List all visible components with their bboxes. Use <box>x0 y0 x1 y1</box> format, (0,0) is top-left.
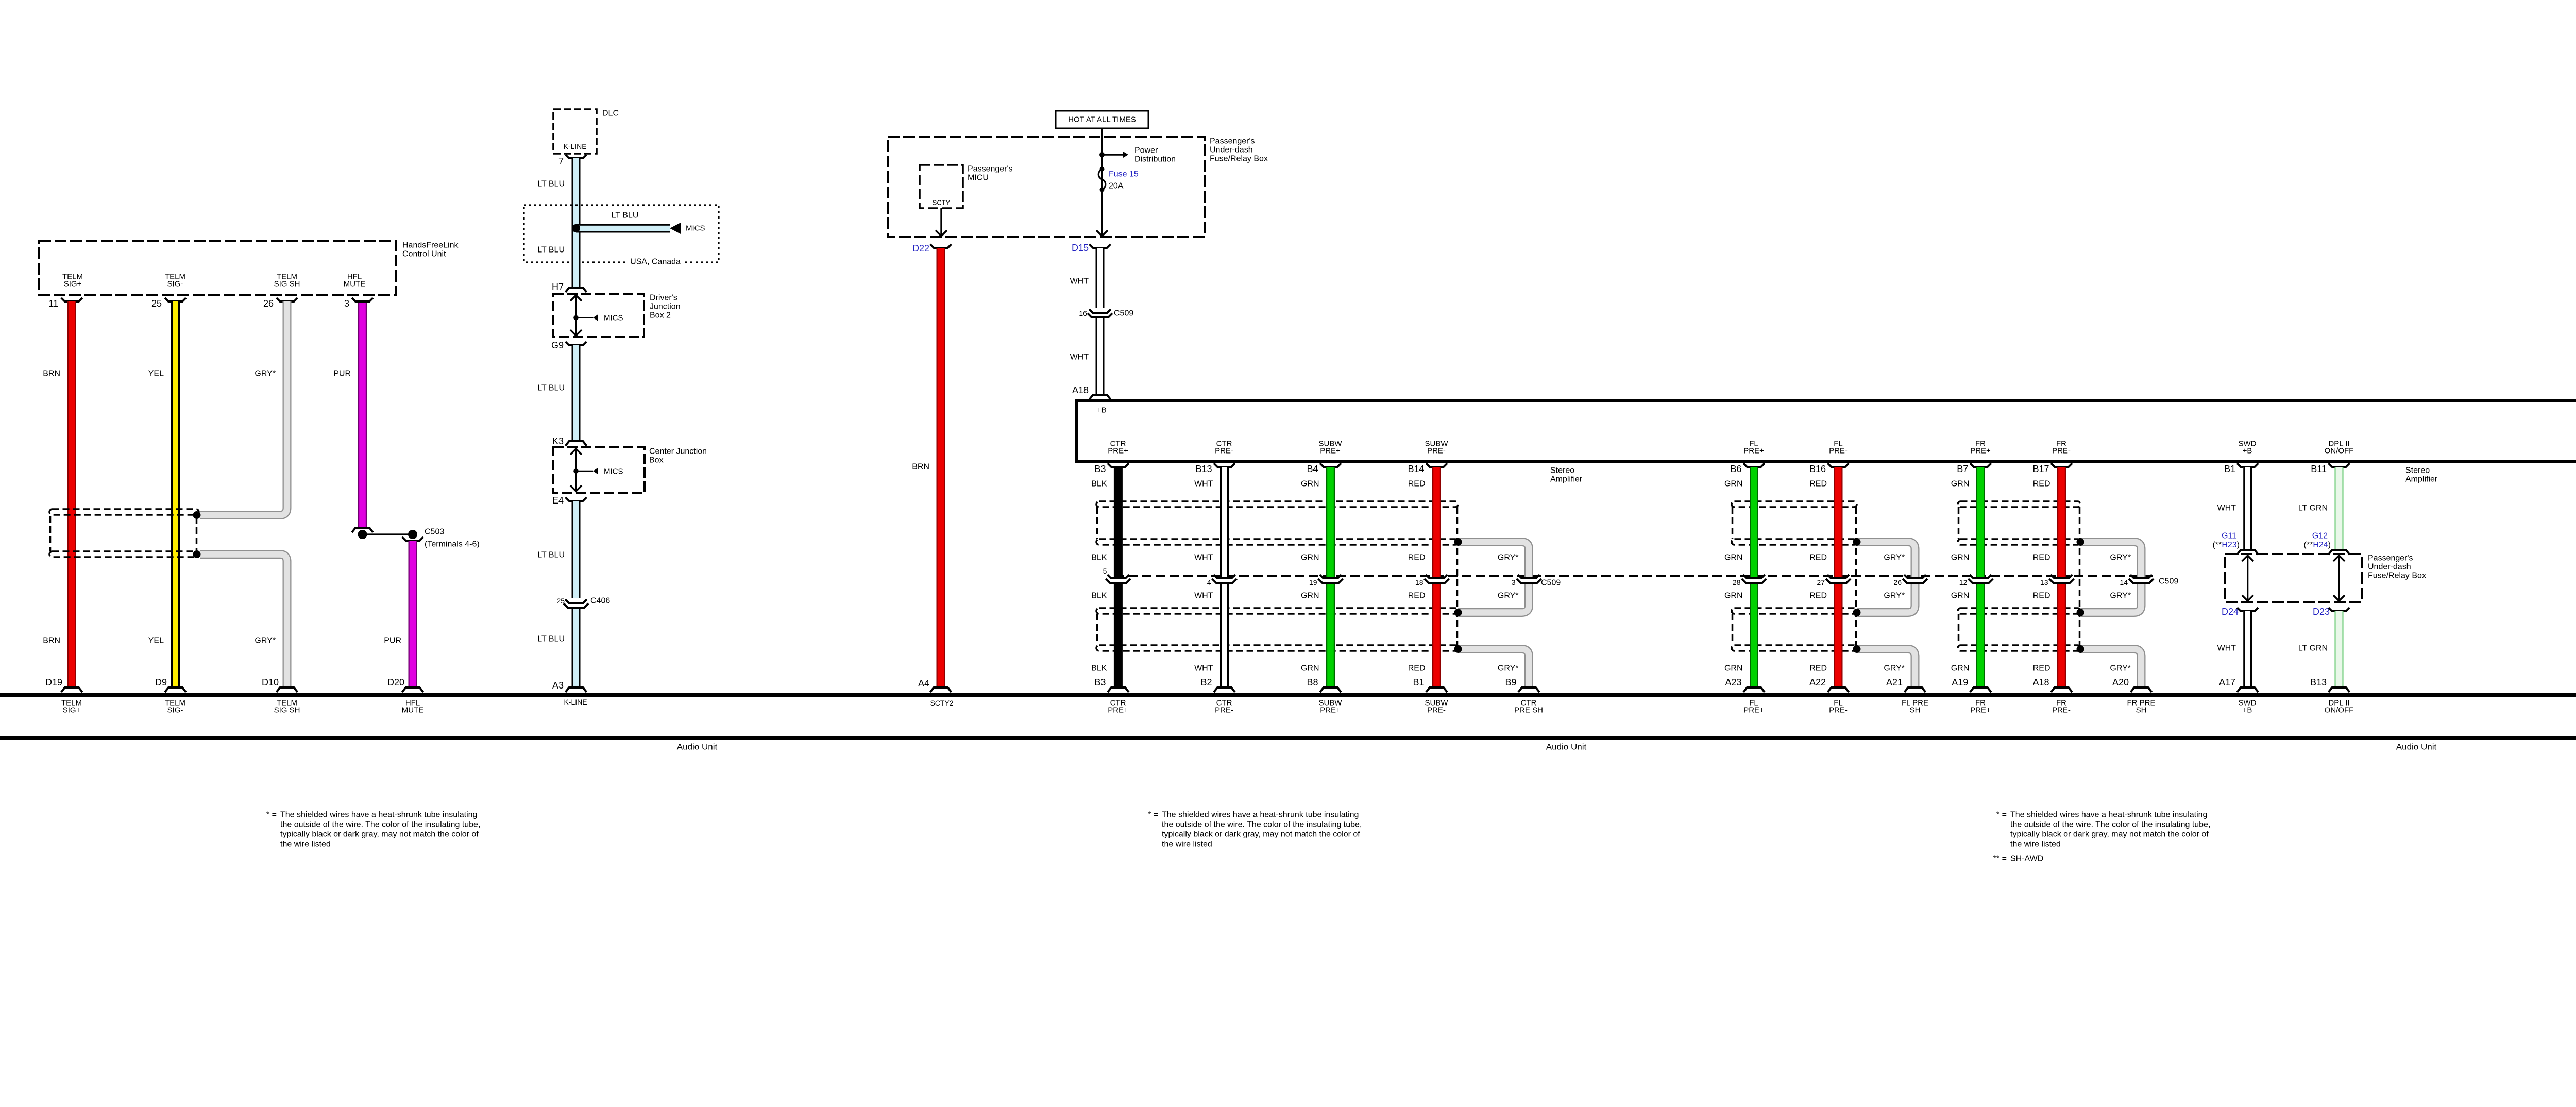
svg-text:PRE-: PRE- <box>1829 447 1848 456</box>
svg-text:SH: SH <box>2136 706 2147 715</box>
svg-text:A22: A22 <box>1809 677 1826 687</box>
svg-text:Stereo: Stereo <box>1550 466 1574 475</box>
svg-text:typically black or dark gray,: typically black or dark gray, may not ma… <box>1162 830 1360 839</box>
svg-text:B14: B14 <box>1408 464 1424 474</box>
svg-text:* =: * = <box>266 811 277 819</box>
svg-text:MICU: MICU <box>968 174 989 182</box>
svg-text:B7: B7 <box>1957 464 1968 474</box>
svg-text:GRN: GRN <box>1724 480 1743 489</box>
svg-text:SH-AWD: SH-AWD <box>2010 854 2043 863</box>
svg-text:** =: ** = <box>1993 854 2007 863</box>
svg-text:RED: RED <box>1408 553 1426 562</box>
svg-text:HandsFreeLink: HandsFreeLink <box>402 241 459 250</box>
svg-text:B6: B6 <box>1730 464 1741 474</box>
svg-text:ON/OFF: ON/OFF <box>2325 706 2354 715</box>
svg-text:The shielded wires have a heat: The shielded wires have a heat-shrunk tu… <box>280 811 477 819</box>
svg-text:SCTY: SCTY <box>933 199 951 207</box>
svg-text:Audio Unit: Audio Unit <box>2396 742 2437 752</box>
svg-text:The shielded wires have a heat: The shielded wires have a heat-shrunk tu… <box>1162 811 1359 819</box>
svg-text:GRY*: GRY* <box>255 636 276 645</box>
svg-text:SCTY2: SCTY2 <box>930 699 953 707</box>
svg-text:GRY*: GRY* <box>1498 553 1519 562</box>
svg-text:GRN: GRN <box>1724 664 1743 673</box>
svg-text:PRE-: PRE- <box>1215 706 1233 715</box>
svg-text:H7: H7 <box>552 282 564 292</box>
svg-text:B13: B13 <box>2310 677 2327 687</box>
svg-text:A3: A3 <box>552 680 564 691</box>
svg-text:7: 7 <box>558 156 564 166</box>
svg-text:C509: C509 <box>2159 577 2178 586</box>
svg-text:the outside of the wire. The c: the outside of the wire. The color of th… <box>1162 820 1362 829</box>
svg-text:PRE+: PRE+ <box>1743 706 1764 715</box>
svg-text:RED: RED <box>1408 480 1426 489</box>
svg-text:typically black or dark gray,: typically black or dark gray, may not ma… <box>280 830 479 839</box>
svg-text:YEL: YEL <box>148 636 164 645</box>
svg-text:Box 2: Box 2 <box>650 311 671 320</box>
svg-text:GRY*: GRY* <box>1498 664 1519 673</box>
svg-text:A4: A4 <box>918 678 929 689</box>
svg-text:Driver's: Driver's <box>650 294 677 303</box>
svg-text:the outside of the wire. The c: the outside of the wire. The color of th… <box>2010 820 2210 829</box>
svg-text:SIG-: SIG- <box>167 706 183 715</box>
svg-text:B8: B8 <box>1307 677 1318 687</box>
svg-text:Passenger's: Passenger's <box>968 165 1013 174</box>
svg-text:B13: B13 <box>1195 464 1212 474</box>
svg-text:RED: RED <box>1809 592 1827 600</box>
svg-text:25: 25 <box>556 597 565 605</box>
svg-text:WHT: WHT <box>1194 592 1213 600</box>
svg-text:Audio Unit: Audio Unit <box>1546 742 1587 752</box>
svg-text:14: 14 <box>2120 578 2128 586</box>
svg-text:Fuse/Relay Box: Fuse/Relay Box <box>2368 572 2426 580</box>
svg-text:B16: B16 <box>1809 464 1826 474</box>
svg-text:YEL: YEL <box>148 370 164 378</box>
svg-text:PRE+: PRE+ <box>1743 447 1764 456</box>
svg-text:+B: +B <box>1097 406 1107 415</box>
svg-text:GRN: GRN <box>1724 553 1743 562</box>
svg-text:WHT: WHT <box>1070 353 1089 362</box>
svg-text:GRY*: GRY* <box>1498 592 1519 600</box>
svg-text:BRN: BRN <box>43 636 60 645</box>
svg-text:MICS: MICS <box>686 224 705 233</box>
svg-text:K-LINE: K-LINE <box>564 698 587 706</box>
svg-text:Box: Box <box>649 456 664 465</box>
svg-text:MICS: MICS <box>604 467 623 476</box>
svg-text:BLK: BLK <box>1091 553 1107 562</box>
svg-text:the wire listed: the wire listed <box>1162 840 1212 849</box>
svg-text:GRY*: GRY* <box>1884 664 1905 673</box>
svg-text:Distribution: Distribution <box>1134 155 1176 164</box>
svg-text:A18: A18 <box>1072 385 1089 395</box>
svg-text:PRE+: PRE+ <box>1108 706 1128 715</box>
svg-text:PRE-: PRE- <box>2052 706 2071 715</box>
svg-text:GRY*: GRY* <box>2110 592 2131 600</box>
svg-text:D9: D9 <box>155 677 167 687</box>
svg-text:D15: D15 <box>1072 243 1089 253</box>
svg-text:3: 3 <box>344 298 349 309</box>
svg-text:GRN: GRN <box>1951 664 1970 673</box>
svg-text:PRE+: PRE+ <box>1108 447 1128 456</box>
svg-text:16: 16 <box>1079 309 1087 317</box>
svg-text:PRE-: PRE- <box>2052 447 2071 456</box>
svg-text:SIG-: SIG- <box>167 280 183 289</box>
svg-text:(**H24): (**H24) <box>2304 541 2331 549</box>
svg-text:ON/OFF: ON/OFF <box>2325 447 2354 456</box>
svg-text:26: 26 <box>1893 578 1902 586</box>
svg-text:B3: B3 <box>1094 677 1106 687</box>
svg-text:SIG+: SIG+ <box>63 706 81 715</box>
svg-text:LT BLU: LT BLU <box>612 211 639 220</box>
svg-text:SH: SH <box>1910 706 1921 715</box>
svg-text:D20: D20 <box>387 677 404 687</box>
svg-text:RED: RED <box>2033 480 2050 489</box>
svg-text:Passenger's: Passenger's <box>2368 554 2413 563</box>
svg-text:20A: 20A <box>1109 182 1124 191</box>
svg-text:Audio Unit: Audio Unit <box>677 742 718 752</box>
svg-text:RED: RED <box>1809 480 1827 489</box>
svg-text:HOT AT ALL TIMES: HOT AT ALL TIMES <box>1068 115 1136 124</box>
svg-text:PRE-: PRE- <box>1215 447 1233 456</box>
svg-text:D24: D24 <box>2222 607 2239 617</box>
svg-text:Control Unit: Control Unit <box>402 250 446 259</box>
svg-text:RED: RED <box>1809 553 1827 562</box>
svg-text:A21: A21 <box>1886 677 1903 687</box>
svg-text:WHT: WHT <box>1194 664 1213 673</box>
svg-text:WHT: WHT <box>1194 553 1213 562</box>
svg-text:G12: G12 <box>2312 532 2328 541</box>
svg-text:GRY*: GRY* <box>2110 664 2131 673</box>
svg-text:LT GRN: LT GRN <box>2298 644 2328 653</box>
svg-text:Amplifier: Amplifier <box>2405 475 2438 484</box>
svg-text:D19: D19 <box>45 677 62 687</box>
svg-text:18: 18 <box>1415 578 1423 586</box>
svg-text:GRY*: GRY* <box>1884 553 1905 562</box>
svg-text:GRN: GRN <box>1951 553 1970 562</box>
svg-text:A18: A18 <box>2032 677 2049 687</box>
svg-text:B11: B11 <box>2311 464 2327 474</box>
svg-text:GRY*: GRY* <box>1884 592 1905 600</box>
svg-text:(Terminals 4-6): (Terminals 4-6) <box>425 540 480 549</box>
svg-text:* =: * = <box>1148 811 1158 819</box>
svg-text:PRE-: PRE- <box>1427 706 1446 715</box>
svg-text:Fuse/Relay Box: Fuse/Relay Box <box>1210 155 1268 163</box>
svg-text:MUTE: MUTE <box>344 280 366 289</box>
svg-text:GRN: GRN <box>1301 664 1319 673</box>
svg-text:28: 28 <box>1733 578 1741 586</box>
svg-text:SIG+: SIG+ <box>64 280 82 289</box>
svg-text:WHT: WHT <box>2217 644 2236 653</box>
svg-text:B2: B2 <box>1200 677 1212 687</box>
svg-text:12: 12 <box>1959 578 1968 586</box>
svg-text:B1: B1 <box>1413 677 1424 687</box>
svg-text:+B: +B <box>2243 447 2252 456</box>
svg-text:LT BLU: LT BLU <box>537 551 565 560</box>
svg-text:WHT: WHT <box>1070 277 1089 286</box>
svg-text:RED: RED <box>1408 664 1426 673</box>
svg-text:Under-dash: Under-dash <box>1210 146 1253 155</box>
svg-text:B9: B9 <box>1505 677 1516 687</box>
svg-text:Amplifier: Amplifier <box>1550 475 1583 484</box>
svg-text:A20: A20 <box>2112 677 2129 687</box>
svg-text:25: 25 <box>151 298 162 309</box>
svg-text:E4: E4 <box>552 495 564 506</box>
svg-text:GRY*: GRY* <box>2110 553 2131 562</box>
svg-text:D22: D22 <box>912 243 929 254</box>
svg-text:19: 19 <box>1309 578 1317 586</box>
svg-text:GRN: GRN <box>1951 592 1970 600</box>
svg-text:the outside of the wire. The c: the outside of the wire. The color of th… <box>280 820 480 829</box>
svg-text:B4: B4 <box>1307 464 1318 474</box>
svg-text:SIG SH: SIG SH <box>274 706 300 715</box>
svg-text:3: 3 <box>1512 578 1516 586</box>
svg-text:4: 4 <box>1207 578 1211 586</box>
svg-text:BLK: BLK <box>1091 664 1107 673</box>
svg-text:K3: K3 <box>552 436 564 446</box>
svg-text:Fuse 15: Fuse 15 <box>1109 170 1139 179</box>
svg-text:A19: A19 <box>1952 677 1968 687</box>
svg-text:PUR: PUR <box>384 636 401 645</box>
svg-text:GRY*: GRY* <box>255 370 276 378</box>
svg-text:C503: C503 <box>425 528 444 536</box>
svg-text:GRN: GRN <box>1301 480 1319 489</box>
svg-text:Power: Power <box>1134 146 1158 155</box>
svg-text:BRN: BRN <box>43 370 60 378</box>
svg-text:Under-dash: Under-dash <box>2368 563 2411 572</box>
svg-text:PRE-: PRE- <box>1427 447 1446 456</box>
svg-text:BLK: BLK <box>1091 480 1107 489</box>
svg-text:PRE+: PRE+ <box>1320 447 1341 456</box>
svg-text:* =: * = <box>1996 811 2007 819</box>
svg-text:LT BLU: LT BLU <box>537 635 565 644</box>
svg-text:LT GRN: LT GRN <box>2298 504 2328 513</box>
svg-text:RED: RED <box>2033 664 2050 673</box>
svg-text:+B: +B <box>2243 706 2252 715</box>
svg-text:26: 26 <box>263 298 274 309</box>
svg-text:B3: B3 <box>1094 464 1106 474</box>
svg-text:C509: C509 <box>1541 579 1561 588</box>
svg-text:C406: C406 <box>590 597 610 606</box>
svg-text:11: 11 <box>48 298 58 309</box>
svg-text:DLC: DLC <box>602 109 619 118</box>
svg-text:GRN: GRN <box>1301 553 1319 562</box>
svg-text:WHT: WHT <box>1194 480 1213 489</box>
svg-text:5: 5 <box>1103 567 1107 575</box>
svg-text:LT BLU: LT BLU <box>537 180 565 189</box>
svg-text:GRN: GRN <box>1951 480 1970 489</box>
svg-text:Center Junction: Center Junction <box>649 447 707 456</box>
svg-text:D23: D23 <box>2313 607 2330 617</box>
svg-text:PRE+: PRE+ <box>1970 447 1991 456</box>
svg-text:G11: G11 <box>2222 532 2236 541</box>
svg-text:C509: C509 <box>1114 309 1133 318</box>
svg-text:MUTE: MUTE <box>402 706 424 715</box>
svg-text:K-LINE: K-LINE <box>563 142 586 150</box>
svg-text:SIG SH: SIG SH <box>274 280 300 289</box>
svg-text:RED: RED <box>2033 553 2050 562</box>
svg-text:(**H23): (**H23) <box>2213 541 2240 549</box>
svg-text:USA, Canada: USA, Canada <box>630 258 681 266</box>
svg-text:D10: D10 <box>262 677 279 687</box>
svg-text:typically black or dark gray,: typically black or dark gray, may not ma… <box>2010 830 2209 839</box>
svg-text:RED: RED <box>1809 664 1827 673</box>
svg-text:LT BLU: LT BLU <box>537 384 565 393</box>
svg-text:BLK: BLK <box>1091 592 1107 600</box>
svg-text:GRN: GRN <box>1724 592 1743 600</box>
svg-text:PRE+: PRE+ <box>1970 706 1991 715</box>
svg-text:The shielded wires have a heat: The shielded wires have a heat-shrunk tu… <box>2010 811 2207 819</box>
svg-text:RED: RED <box>2033 592 2050 600</box>
svg-text:Junction: Junction <box>650 303 681 311</box>
svg-text:G9: G9 <box>551 340 564 350</box>
svg-text:A17: A17 <box>2219 677 2235 687</box>
svg-text:PRE-: PRE- <box>1829 706 1848 715</box>
svg-text:13: 13 <box>2040 578 2048 586</box>
svg-text:B17: B17 <box>2032 464 2049 474</box>
svg-text:GRN: GRN <box>1301 592 1319 600</box>
svg-text:27: 27 <box>1817 578 1825 586</box>
svg-text:A23: A23 <box>1725 677 1741 687</box>
svg-text:LT BLU: LT BLU <box>537 246 565 255</box>
svg-text:PRE SH: PRE SH <box>1514 706 1543 715</box>
svg-text:the wire listed: the wire listed <box>280 840 331 849</box>
svg-text:B1: B1 <box>2224 464 2235 474</box>
svg-text:RED: RED <box>1408 592 1426 600</box>
svg-text:MICS: MICS <box>604 314 623 323</box>
svg-text:Passenger's: Passenger's <box>1210 137 1255 146</box>
svg-text:BRN: BRN <box>912 463 929 472</box>
svg-text:the wire listed: the wire listed <box>2010 840 2061 849</box>
svg-text:Stereo: Stereo <box>2405 466 2430 475</box>
svg-text:PRE+: PRE+ <box>1320 706 1341 715</box>
svg-text:WHT: WHT <box>2217 504 2236 513</box>
svg-text:PUR: PUR <box>333 370 351 378</box>
